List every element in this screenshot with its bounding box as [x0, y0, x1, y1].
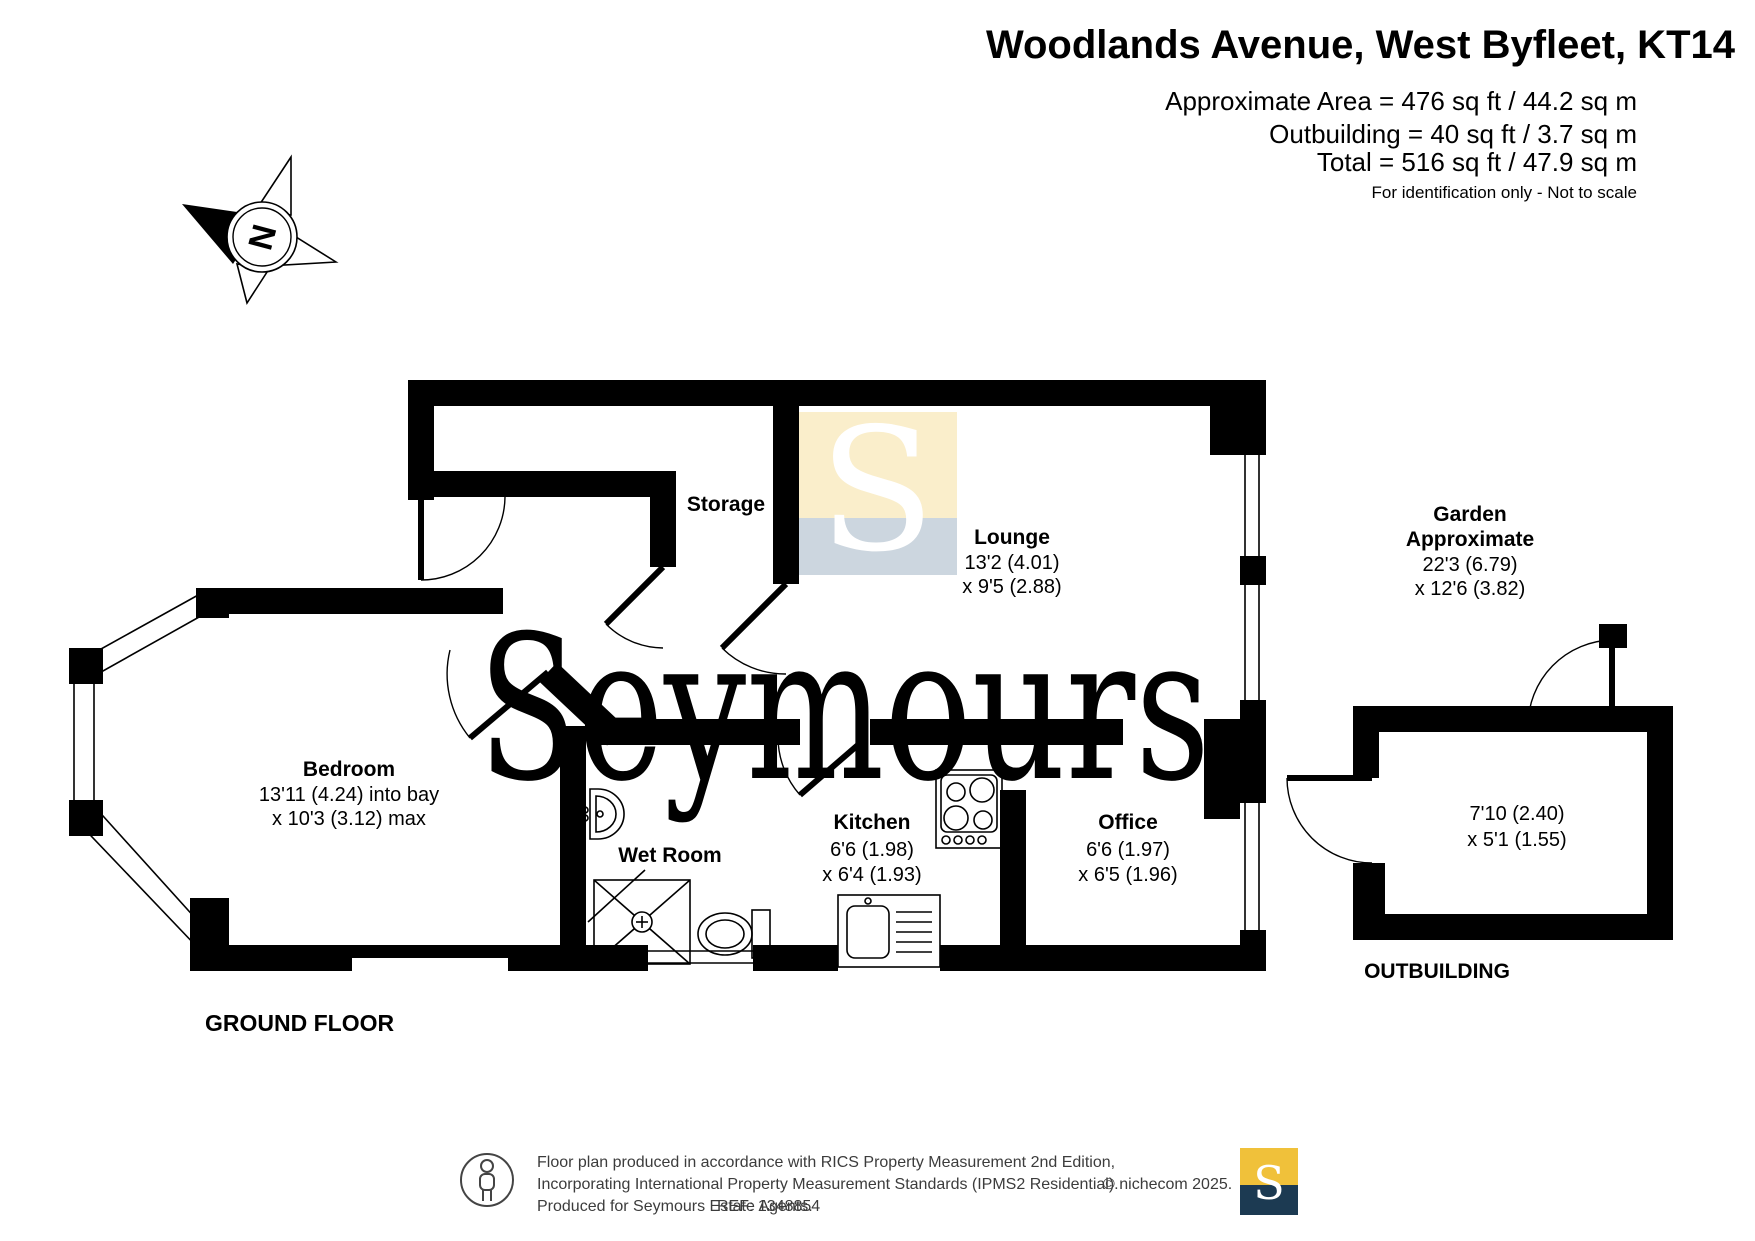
ground-floor-label: GROUND FLOOR — [205, 1010, 394, 1036]
outbuilding-label: OUTBUILDING — [1364, 960, 1510, 983]
kitchen-label: Kitchen — [833, 811, 910, 834]
outbuilding-structure — [1287, 624, 1673, 940]
page-title: Woodlands Avenue, West Byfleet, KT14 — [986, 23, 1736, 67]
floorplan-page: Woodlands Avenue, West Byfleet, KT14 App… — [0, 0, 1755, 1241]
office-label: Office — [1098, 811, 1158, 834]
seymours-logo: S — [1240, 1148, 1298, 1215]
garden-qualifier: Approximate — [1406, 528, 1534, 551]
disclaimer-text: For identification only - Not to scale — [1371, 183, 1637, 202]
compass-rose-icon: N — [182, 157, 336, 303]
lounge-dims-1: 13'2 (4.01) — [965, 552, 1060, 574]
watermark-s-letter: S — [819, 392, 935, 590]
garden-dims-2: x 12'6 (3.82) — [1415, 578, 1526, 600]
footer-line-2: Incorporating International Property Mea… — [537, 1176, 1119, 1193]
bedroom-label: Bedroom — [303, 758, 395, 781]
bedroom-dims-1: 13'11 (4.24) into bay — [259, 784, 439, 806]
wet-room-label: Wet Room — [618, 844, 721, 867]
kitchen-dims-1: 6'6 (1.98) — [830, 839, 914, 861]
storage-label: Storage — [687, 493, 765, 516]
office-dims-1: 6'6 (1.97) — [1086, 839, 1170, 861]
total-area-text: Total = 516 sq ft / 47.9 sq m — [1317, 147, 1637, 177]
garden-dims-1: 22'3 (6.79) — [1423, 554, 1518, 576]
person-icon — [461, 1154, 513, 1206]
floorplan-canvas: Woodlands Avenue, West Byfleet, KT14 App… — [0, 0, 1755, 1241]
kitchen-dims-2: x 6'4 (1.93) — [822, 864, 921, 886]
footer-line-1: Floor plan produced in accordance with R… — [537, 1154, 1115, 1171]
footer-copyright: © nichecom 2025. — [1103, 1176, 1232, 1193]
approximate-area-text: Approximate Area = 476 sq ft / 44.2 sq m — [1165, 86, 1637, 116]
outbuilding-area-text: Outbuilding = 40 sq ft / 3.7 sq m — [1269, 119, 1637, 149]
garden-label: Garden — [1433, 503, 1507, 526]
outbuilding-dims-2: x 5'1 (1.55) — [1467, 829, 1566, 851]
logo-s-letter: S — [1253, 1156, 1285, 1210]
header: Woodlands Avenue, West Byfleet, KT14 App… — [986, 23, 1736, 202]
footer: Floor plan produced in accordance with R… — [461, 1148, 1298, 1215]
lounge-label: Lounge — [974, 526, 1050, 549]
lounge-dims-2: x 9'5 (2.88) — [962, 576, 1061, 598]
office-dims-2: x 6'5 (1.96) — [1078, 864, 1177, 886]
bedroom-dims-2: x 10'3 (3.12) max — [272, 808, 426, 830]
outbuilding-dims-1: 7'10 (2.40) — [1470, 803, 1565, 825]
footer-ref: REF: 1348854 — [717, 1198, 820, 1215]
